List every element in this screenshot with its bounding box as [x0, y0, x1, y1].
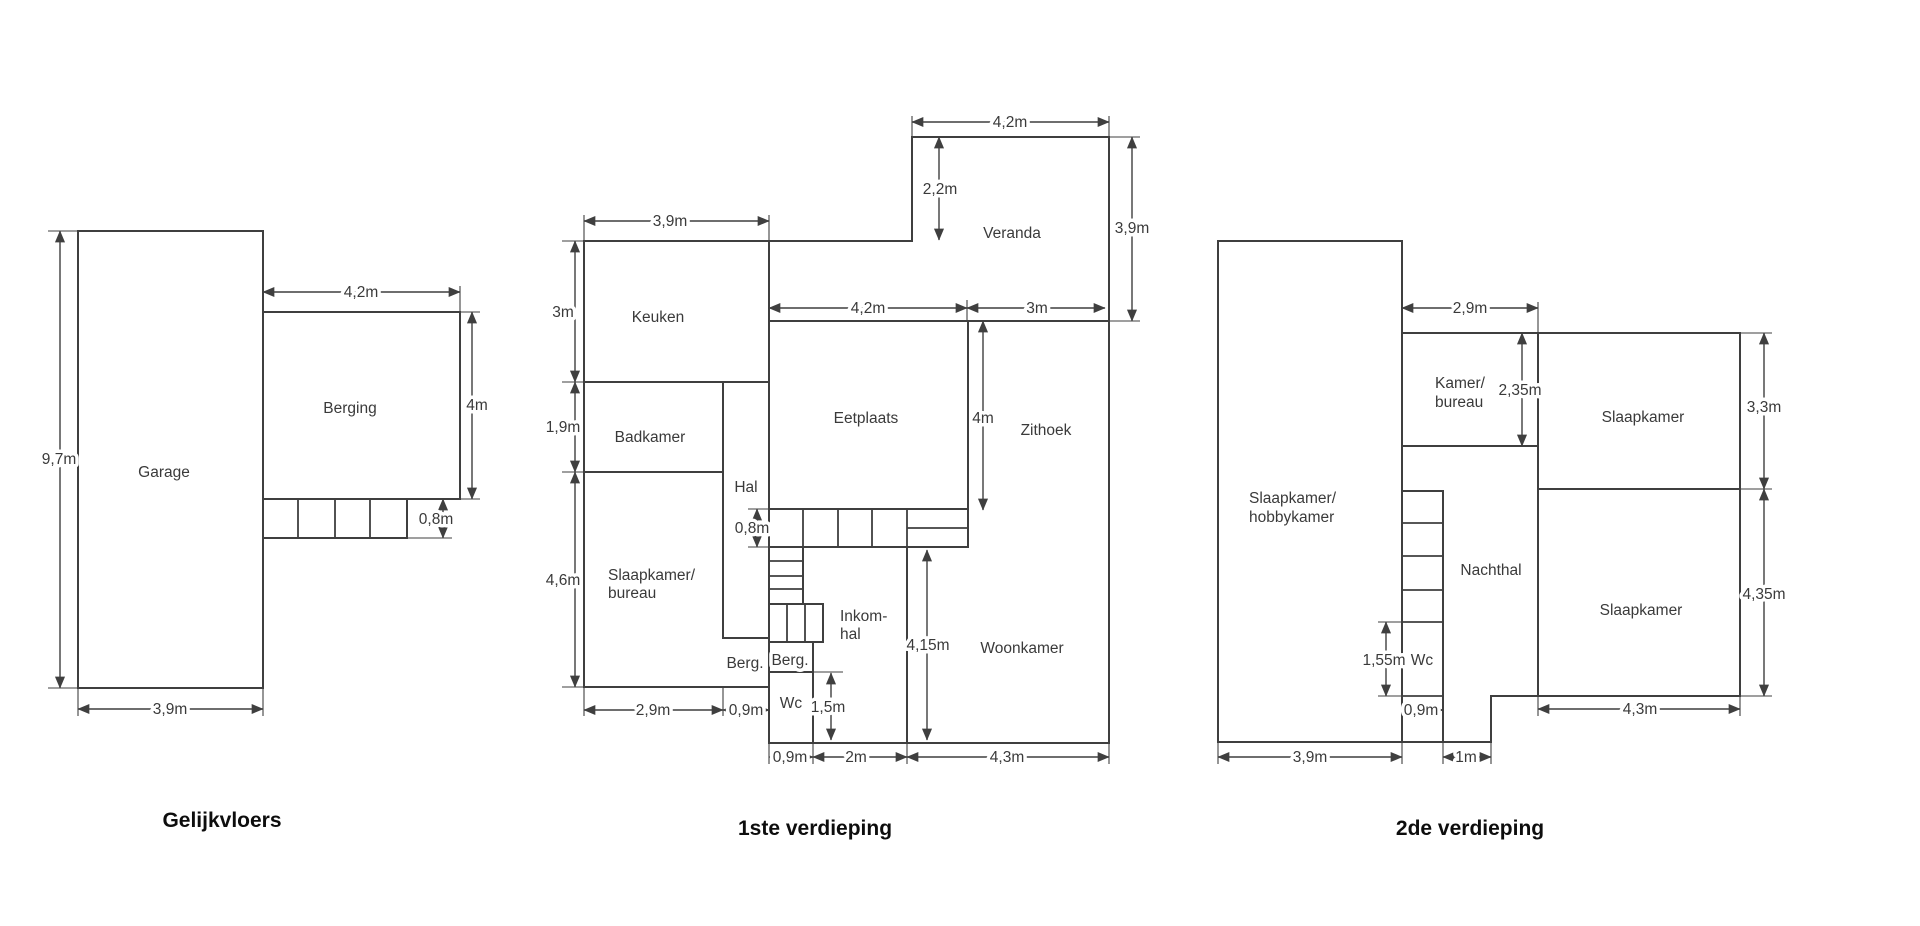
- room-label-wc: Wc: [780, 695, 803, 712]
- dim-label-plan-width: 3,9m: [1293, 749, 1327, 766]
- room-label-kamer-bureau-line1: Kamer/: [1435, 375, 1486, 392]
- room-label-slaapkamer-bureau-line1: Slaapkamer/: [608, 567, 696, 584]
- room-label-inkomhal-line1: Inkom-: [840, 608, 887, 625]
- dim-label-eetplaats-height: 4m: [972, 410, 994, 427]
- floorplan-drawing: Garage Berging 9,7m 4,2m 4m 0,8m 3,9m Ge…: [0, 0, 1920, 926]
- room-label-berging: Berging: [323, 400, 376, 417]
- dim-label-kamer-height: 2,35m: [1498, 382, 1541, 399]
- dim-label-berging-height: 4m: [466, 397, 488, 414]
- dim-label-steps-depth: 0,8m: [735, 520, 769, 537]
- dim-label-eetplaats-width: 4,2m: [851, 300, 885, 317]
- floorplan-canvas: Garage Berging 9,7m 4,2m 4m 0,8m 3,9m Ge…: [0, 0, 1920, 926]
- room-label-inkomhal-line2: hal: [840, 626, 861, 643]
- dim-label-woonkamer-width: 4,3m: [990, 749, 1024, 766]
- room-label-zithoek: Zithoek: [1021, 422, 1072, 439]
- dimensions-2de-verdieping: [1218, 302, 1772, 764]
- dim-label-zithoek-width: 3m: [1026, 300, 1048, 317]
- dim-label-slaapkamer-width: 2,9m: [636, 702, 670, 719]
- room-label-veranda: Veranda: [983, 225, 1041, 242]
- dim-label-garage-width: 3,9m: [153, 701, 187, 718]
- room-label-slaapkamer-bureau-line2: bureau: [608, 585, 656, 602]
- floor-plan-1ste-verdieping: Keuken Badkamer Hal Slaapkamer/ bureau E…: [546, 114, 1149, 840]
- room-label-slaapkamer-top: Slaapkamer: [1602, 409, 1685, 426]
- room-label-berg-right: Berg.: [771, 652, 808, 669]
- room-label-slaapkamer-hobbykamer-line1: Slaapkamer/: [1249, 490, 1337, 507]
- dim-label-slaapkamer-bottom-height: 4,35m: [1742, 586, 1785, 603]
- floor-title-1ste-verdieping: 1ste verdieping: [738, 817, 892, 840]
- room-label-nachthal: Nachthal: [1460, 562, 1521, 579]
- dim-label-wc-width: 0,9m: [773, 749, 807, 766]
- dim-label-veranda-inset: 2,2m: [923, 181, 957, 198]
- room-label-kamer-bureau-line2: bureau: [1435, 394, 1483, 411]
- floor-plan-gelijkvloers: Garage Berging 9,7m 4,2m 4m 0,8m 3,9m Ge…: [42, 231, 488, 832]
- dim-label-passage-width: 1m: [1455, 749, 1477, 766]
- room-label-badkamer: Badkamer: [615, 429, 686, 446]
- dim-label-kamer-width: 2,9m: [1453, 300, 1487, 317]
- dim-label-woonkamer-height: 4,15m: [906, 637, 949, 654]
- floor-plan-2de-verdieping: Slaapkamer/ hobbykamer Kamer/ bureau Sla…: [1218, 241, 1786, 840]
- dim-label-slaapkamer-height: 4,6m: [546, 572, 580, 589]
- room-label-hal: Hal: [734, 479, 757, 496]
- room-label-slaapkamer-bottom: Slaapkamer: [1600, 602, 1683, 619]
- dim-label-wc-height: 1,55m: [1362, 652, 1405, 669]
- room-label-eetplaats: Eetplaats: [834, 410, 899, 427]
- dim-label-keuken-width: 3,9m: [653, 213, 687, 230]
- dim-label-wc-width: 0,9m: [1404, 702, 1438, 719]
- dim-label-veranda-width: 4,2m: [993, 114, 1027, 131]
- walls-gelijkvloers: [78, 231, 460, 688]
- dim-label-inkomhal-width: 2m: [845, 749, 867, 766]
- floor-title-gelijkvloers: Gelijkvloers: [162, 809, 281, 832]
- dim-label-berging-width: 4,2m: [344, 284, 378, 301]
- dim-label-slaapkamer-top-height: 3,3m: [1747, 399, 1781, 416]
- entrance-steps: [769, 604, 823, 642]
- dim-label-garage-height: 9,7m: [42, 451, 76, 468]
- room-label-keuken: Keuken: [632, 309, 685, 326]
- floor-title-2de-verdieping: 2de verdieping: [1396, 817, 1544, 840]
- room-label-garage: Garage: [138, 464, 190, 481]
- dim-label-steps-depth: 0,8m: [419, 511, 453, 528]
- dim-label-badkamer-height: 1,9m: [546, 419, 580, 436]
- garage-outline: [78, 231, 263, 688]
- room-label-berg-left: Berg.: [726, 655, 763, 672]
- dim-label-veranda-height: 3,9m: [1115, 220, 1149, 237]
- dim-label-wc-height: 1,5m: [811, 699, 845, 716]
- room-label-slaapkamer-hobbykamer-line2: hobbykamer: [1249, 509, 1334, 526]
- room-label-woonkamer: Woonkamer: [980, 640, 1063, 657]
- dim-label-keuken-height: 3m: [552, 304, 574, 321]
- room-label-wc: Wc: [1411, 652, 1434, 669]
- dim-label-hal-width: 0,9m: [729, 702, 763, 719]
- dim-label-slaapkamer-bottom-width: 4,3m: [1623, 701, 1657, 718]
